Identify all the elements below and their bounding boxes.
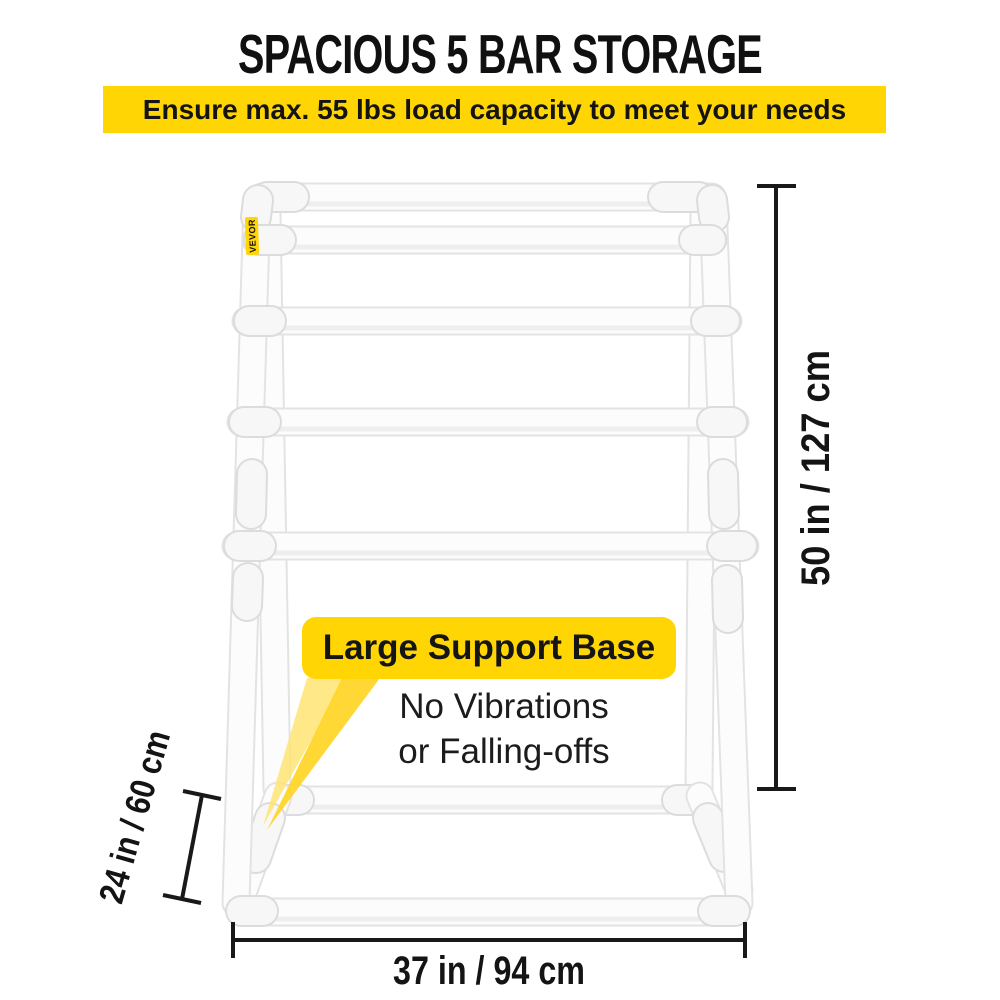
vevor-badge-label: VEVOR [247, 219, 258, 253]
pipe-segment [727, 580, 728, 618]
support-base-description: No Vibrations or Falling-offs [328, 684, 680, 774]
dimension-height: 50 in / 127 cm [757, 186, 838, 789]
pipe-segment [256, 200, 258, 217]
support-base-callout: Large Support Base [302, 617, 676, 679]
dimension-depth: 24 in / 60 cm [91, 726, 221, 908]
pipe-segment [247, 578, 248, 606]
capacity-banner: Ensure max. 55 lbs load capacity to meet… [103, 86, 886, 133]
dimension-depth-label: 24 in / 60 cm [91, 726, 178, 908]
page-title: SPACIOUS 5 BAR STORAGE [140, 22, 860, 86]
rack-illustration [236, 197, 745, 919]
rack-illustration-canvas: VEVOR 50 in / 127 cm 24 in / 60 cm 37 in… [0, 0, 1000, 1000]
dimension-width-label: 37 in / 94 cm [393, 948, 585, 993]
support-base-description-line2: or Falling-offs [328, 729, 680, 774]
vevor-badge: VEVOR [245, 217, 259, 255]
support-base-description-line1: No Vibrations [328, 684, 680, 729]
pipe-segment [256, 818, 270, 858]
pipe-segment [712, 200, 714, 217]
pipe-segment [182, 795, 202, 899]
dimension-width: 37 in / 94 cm [233, 922, 745, 993]
product-infographic: VEVOR 50 in / 127 cm 24 in / 60 cm 37 in… [0, 0, 1000, 1000]
dimension-height-label: 50 in / 127 cm [793, 350, 838, 586]
pipe-segment [251, 474, 252, 514]
pipe-segment [723, 474, 724, 514]
